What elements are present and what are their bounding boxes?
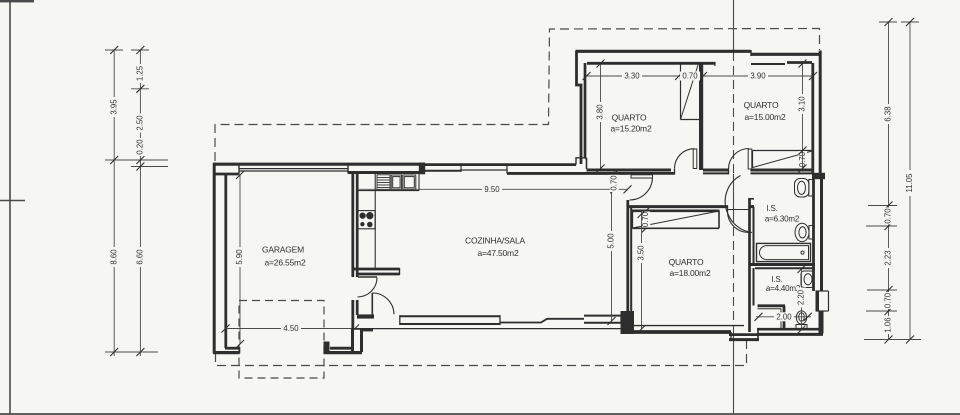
svg-text:3.90: 3.90 [750, 72, 766, 81]
svg-text:a=18.00m2: a=18.00m2 [670, 268, 711, 278]
svg-text:5.00: 5.00 [607, 233, 616, 249]
svg-text:6.38: 6.38 [884, 106, 893, 121]
svg-text:2.00: 2.00 [776, 312, 792, 321]
svg-text:GARAGEM: GARAGEM [262, 245, 304, 255]
svg-text:QUARTO: QUARTO [669, 257, 704, 267]
svg-text:0.20: 0.20 [135, 139, 144, 155]
svg-text:I.S.: I.S. [766, 204, 777, 213]
svg-text:0.70: 0.70 [884, 208, 893, 224]
svg-text:a=6.30m2: a=6.30m2 [765, 215, 800, 224]
svg-text:3.80: 3.80 [596, 104, 605, 120]
svg-text:a=47.50m2: a=47.50m2 [478, 248, 519, 258]
svg-text:QUARTO: QUARTO [744, 100, 779, 110]
svg-text:COZINHA/SALA: COZINHA/SALA [465, 236, 525, 246]
svg-text:2.50: 2.50 [135, 115, 144, 131]
svg-text:2.20: 2.20 [797, 289, 806, 305]
svg-text:0.70: 0.70 [884, 292, 893, 308]
svg-text:3.95: 3.95 [109, 99, 118, 115]
svg-text:2.23: 2.23 [884, 250, 893, 265]
svg-text:0.70: 0.70 [609, 175, 618, 191]
svg-text:3.30: 3.30 [624, 72, 640, 81]
svg-text:4.50: 4.50 [283, 324, 299, 333]
svg-text:5.90: 5.90 [235, 249, 244, 265]
svg-text:8.60: 8.60 [109, 249, 118, 265]
svg-text:0.70: 0.70 [682, 72, 698, 81]
svg-text:1.06: 1.06 [884, 317, 893, 332]
svg-text:9.50: 9.50 [484, 185, 500, 194]
svg-text:QUARTO: QUARTO [612, 113, 647, 123]
svg-text:3.10: 3.10 [798, 96, 807, 112]
svg-text:3.50: 3.50 [637, 245, 646, 261]
svg-text:a=15.00m2: a=15.00m2 [745, 112, 786, 122]
svg-text:a=26.55m2: a=26.55m2 [265, 258, 306, 268]
svg-text:6.60: 6.60 [135, 249, 144, 265]
svg-text:11.05: 11.05 [905, 173, 914, 193]
svg-text:I.S.: I.S. [771, 275, 782, 284]
svg-text:1.25: 1.25 [135, 65, 144, 81]
svg-text:a=15.20m2: a=15.20m2 [611, 124, 652, 134]
